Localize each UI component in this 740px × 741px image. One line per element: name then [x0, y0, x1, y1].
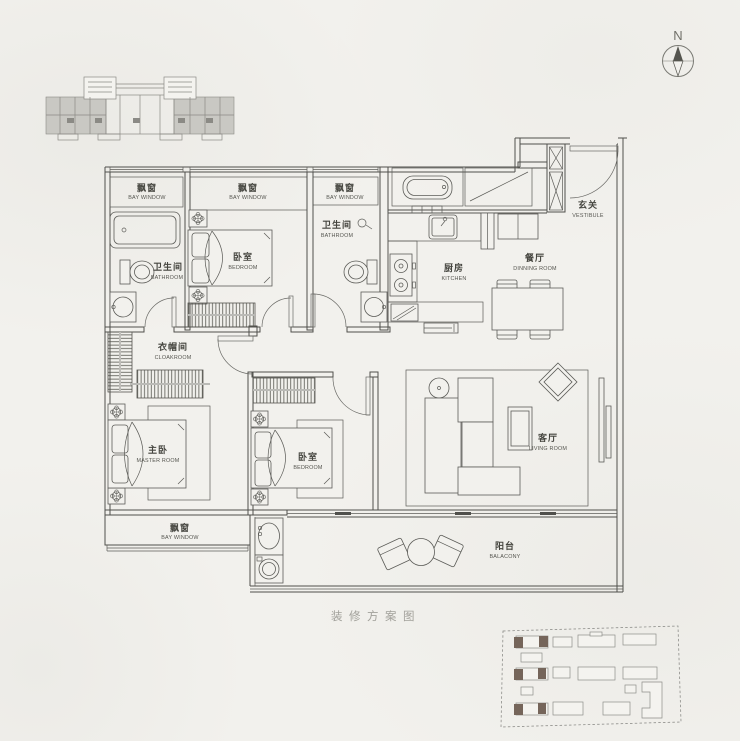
- balcony-railing-band: [250, 586, 623, 592]
- label-bedroom-2-zh: 卧室: [298, 451, 318, 462]
- bay-window-glazing-top: [110, 167, 378, 172]
- sofa-icon: [425, 378, 520, 495]
- label-bay-window-4-en: BAY WINDOW: [161, 535, 199, 541]
- label-bedroom-1-en: BEDROOM: [228, 265, 258, 271]
- label-bay-window-3-en: BAY WINDOW: [326, 195, 364, 201]
- compass-needle-north: [673, 46, 683, 61]
- keyplan-left-core: [84, 77, 116, 99]
- label-dining-en: DINNING ROOM: [513, 266, 557, 272]
- master-bay-window: [105, 515, 250, 551]
- label-bedroom-1-zh: 卧室: [233, 251, 253, 262]
- closet-icon: [130, 370, 210, 398]
- label-living-room-en: LIVING ROOM: [529, 446, 567, 452]
- washbasin-icon: [361, 292, 387, 322]
- bathtub-top-icon: [403, 176, 452, 199]
- nightstand-icon: [251, 411, 268, 427]
- bedroom-2-area: [251, 378, 343, 505]
- label-bay-window-2-en: BAY WINDOW: [229, 195, 267, 201]
- washbasin-icon: [110, 292, 136, 322]
- label-balcony-en: BALACONY: [490, 554, 521, 560]
- dining-set-icon: [492, 280, 563, 339]
- cutting-board-icon: [424, 323, 458, 333]
- keyplan-left-wing-highlight: [46, 97, 106, 134]
- nightstand-icon: [108, 404, 125, 420]
- stove-icon: [390, 254, 416, 296]
- equipment-platform: [392, 168, 532, 213]
- label-kitchen-zh: 厨房: [444, 262, 464, 273]
- double-bed-icon: [188, 230, 272, 286]
- keyplan-right-wing-highlight: [174, 97, 234, 134]
- label-bathroom-1-en: BATHROOM: [151, 275, 184, 281]
- label-balcony-zh: 阳台: [495, 540, 515, 551]
- kitchen-sink-icon: [429, 215, 457, 239]
- dining-table-icon: [492, 288, 563, 330]
- label-cloakroom-zh: 衣帽间: [158, 341, 188, 352]
- north-compass: N: [663, 28, 694, 77]
- side-table-icon: [429, 378, 449, 398]
- washing-machine-icon: [255, 555, 283, 583]
- label-bathroom-1-zh: 卫生间: [153, 261, 183, 272]
- tv-icon: [606, 406, 611, 458]
- plan-caption: 装修方案图: [331, 609, 421, 623]
- label-living-room-zh: 客厅: [537, 432, 558, 443]
- compass-needle-south: [673, 61, 683, 76]
- wardrobe-icon: [188, 303, 255, 327]
- accent-table-icon: [539, 363, 577, 401]
- closet-icon: [108, 332, 132, 392]
- nightstand-icon: [189, 210, 207, 227]
- towel-hook-icon: [358, 219, 372, 229]
- site-l-building: [642, 682, 662, 718]
- label-vestibule-zh: 玄关: [578, 199, 598, 210]
- bedroom1-door-icon: [262, 296, 293, 327]
- entry-cabinet-icon: [498, 214, 538, 239]
- entry-door-icon: [570, 146, 618, 198]
- label-cloakroom-en: CLOAKROOM: [155, 355, 192, 361]
- elevator-shaft-icon: [547, 144, 565, 212]
- balcony-chair-icon: [430, 535, 464, 568]
- site-highlight-unit: [538, 668, 546, 679]
- keyplan-right-core: [164, 77, 196, 99]
- label-kitchen-en: KITCHEN: [441, 276, 466, 282]
- site-highlight-unit: [538, 703, 546, 714]
- cloakroom-door-icon: [218, 336, 253, 374]
- nightstand-icon: [251, 489, 268, 505]
- floor-plan-page: N: [0, 0, 740, 741]
- balcony-chair-icon: [377, 538, 411, 571]
- living-room-area: [406, 363, 611, 506]
- coffee-table-icon: [508, 407, 532, 450]
- floor-plan-canvas: N: [0, 0, 740, 741]
- bathroom2-door-icon: [311, 294, 346, 327]
- nightstand-icon: [189, 287, 207, 304]
- label-dining-zh: 餐厅: [524, 252, 545, 263]
- bathtub-icon: [110, 212, 180, 248]
- bathroom1-door-icon: [145, 297, 176, 327]
- sliding-door-band: [287, 510, 617, 517]
- label-bay-window-4-zh: 飘窗: [170, 522, 190, 533]
- compass-north-label: N: [673, 28, 682, 43]
- site-plan: [501, 626, 681, 727]
- bedroom2-door-icon: [333, 377, 370, 415]
- site-highlight-unit: [514, 669, 523, 680]
- label-bedroom-2-en: BEDROOM: [293, 465, 323, 471]
- site-highlight-unit: [514, 704, 523, 715]
- building-key-plan: [46, 77, 234, 140]
- bay-window-box-2: [190, 177, 307, 210]
- double-bed-icon: [251, 428, 332, 488]
- tv-console-icon: [599, 378, 611, 462]
- laundry-sink-icon: [255, 518, 283, 555]
- label-bay-window-1-en: BAY WINDOW: [128, 195, 166, 201]
- label-master-room-en: MASTER ROOM: [137, 458, 180, 464]
- label-bay-window-2-zh: 飘窗: [238, 182, 258, 193]
- unit-floor-plan: 飘窗 BAY WINDOW 飘窗 BAY WINDOW 飘窗 BAY WINDO…: [105, 138, 627, 592]
- label-master-room-zh: 主卧: [148, 444, 168, 455]
- balcony-table-icon: [408, 539, 435, 566]
- toilet-icon: [344, 260, 377, 284]
- wardrobe-icon: [253, 378, 315, 403]
- fridge-icon: [481, 213, 494, 249]
- label-bay-window-3-zh: 飘窗: [335, 182, 355, 193]
- site-highlight-unit: [539, 636, 548, 647]
- label-bathroom-2-en: BATHROOM: [321, 233, 354, 239]
- toilet-icon: [120, 260, 154, 284]
- nightstand-icon: [108, 488, 125, 504]
- label-bathroom-2-zh: 卫生间: [322, 219, 352, 230]
- site-highlight-unit: [514, 637, 523, 648]
- balcony-area: [255, 518, 464, 583]
- dish-rack-icon: [391, 304, 418, 321]
- label-vestibule-en: VESTIBULE: [572, 213, 604, 219]
- label-bay-window-1-zh: 飘窗: [137, 182, 157, 193]
